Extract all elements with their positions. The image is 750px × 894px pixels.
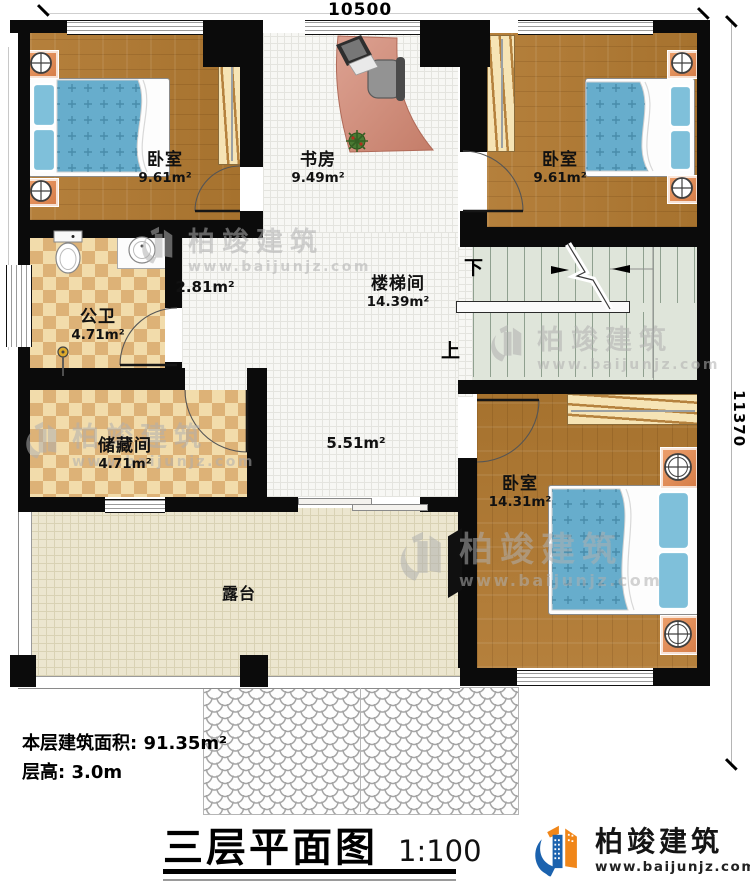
- nightstand: [667, 175, 699, 204]
- dimension-height: 11370: [730, 390, 748, 447]
- wall: [165, 497, 298, 512]
- stairs-upper-flight: [473, 247, 698, 303]
- room-label-corridor-area: 2.81m²: [155, 279, 255, 296]
- nightstand: [25, 178, 59, 207]
- room-label-bathroom: 公卫 4.71m²: [48, 308, 148, 343]
- stairs-handrail: [456, 301, 630, 313]
- dimension-width: 10500: [328, 0, 392, 20]
- brand-text: 柏竣建筑 www.baijunjz.com: [595, 828, 750, 875]
- stairs-landing-line: [653, 247, 654, 380]
- terrace-pillar: [240, 655, 268, 687]
- bathroom-counter: [117, 233, 169, 269]
- title-underline-thin: [163, 879, 456, 881]
- wall: [240, 211, 263, 238]
- stairs-down-label: 下: [464, 253, 483, 280]
- floor-plan-canvas: 卧室 9.61m² 书房 9.49m² 卧室 9.61m² 公卫 4.71m² …: [0, 0, 750, 894]
- terrace-parapet-left: [18, 508, 32, 676]
- wall: [653, 668, 710, 686]
- brand-name: 柏竣建筑: [595, 828, 750, 856]
- brand-logo: 柏竣建筑 www.baijunjz.com: [531, 820, 750, 882]
- window-bedroom3: [517, 670, 653, 686]
- terrace-parapet-bottom: [18, 676, 460, 689]
- wall: [240, 20, 263, 167]
- title-block: 三层平面图 1:100: [163, 815, 482, 873]
- title-underline: [163, 869, 456, 874]
- wall: [460, 668, 517, 686]
- wardrobe-bedroom3: [567, 394, 699, 425]
- terrace-pillar: [10, 655, 36, 687]
- roof-tiles: [203, 687, 519, 815]
- wall: [247, 390, 267, 497]
- room-label-bedroom3: 卧室 14.31m²: [465, 475, 575, 510]
- stairs-lower-flight: [473, 312, 653, 377]
- wall-right: [697, 20, 710, 686]
- room-label-bedroom2: 卧室 9.61m²: [505, 151, 615, 186]
- dimension-tick: [37, 4, 49, 16]
- floor-area-note: 本层建筑面积: 91.35m²: [22, 729, 227, 755]
- window-top-3: [518, 20, 653, 35]
- floor-height-note: 层高: 3.0m: [22, 758, 122, 784]
- wall: [458, 380, 710, 394]
- room-label-hall-area: 5.51m²: [306, 435, 406, 452]
- room-label-bedroom1: 卧室 9.61m²: [110, 151, 220, 186]
- wall: [18, 220, 263, 238]
- window-left-bathroom: [6, 265, 32, 347]
- terrace-door-leaf: [448, 528, 462, 598]
- stairs-up-label: 上: [441, 336, 460, 363]
- nightstand: [660, 447, 699, 489]
- room-label-terrace: 露台: [189, 585, 289, 603]
- wall: [460, 33, 487, 152]
- window-storage: [105, 499, 165, 513]
- window-top-1: [67, 20, 203, 35]
- wall: [18, 497, 105, 512]
- wall: [247, 368, 267, 390]
- sliding-door-panel: [352, 504, 428, 511]
- room-label-study: 书房 9.49m²: [263, 151, 373, 186]
- brand-website: www.baijunjz.com: [595, 859, 750, 875]
- nightstand: [25, 50, 59, 79]
- logo-icon: [531, 820, 585, 882]
- room-label-stairwell: 楼梯间 14.39m²: [343, 275, 453, 310]
- wall: [165, 238, 182, 308]
- roof-tiles-divider: [360, 688, 361, 812]
- wardrobe-bedroom2: [487, 35, 515, 152]
- nightstand: [660, 615, 699, 655]
- nightstand: [667, 50, 699, 79]
- room-label-storage: 储藏间 4.71m²: [70, 437, 180, 472]
- scale-label: 1:100: [398, 834, 482, 868]
- page-title: 三层平面图: [163, 815, 378, 873]
- wall: [18, 368, 185, 390]
- wall: [460, 227, 710, 247]
- window-top-2: [305, 20, 420, 35]
